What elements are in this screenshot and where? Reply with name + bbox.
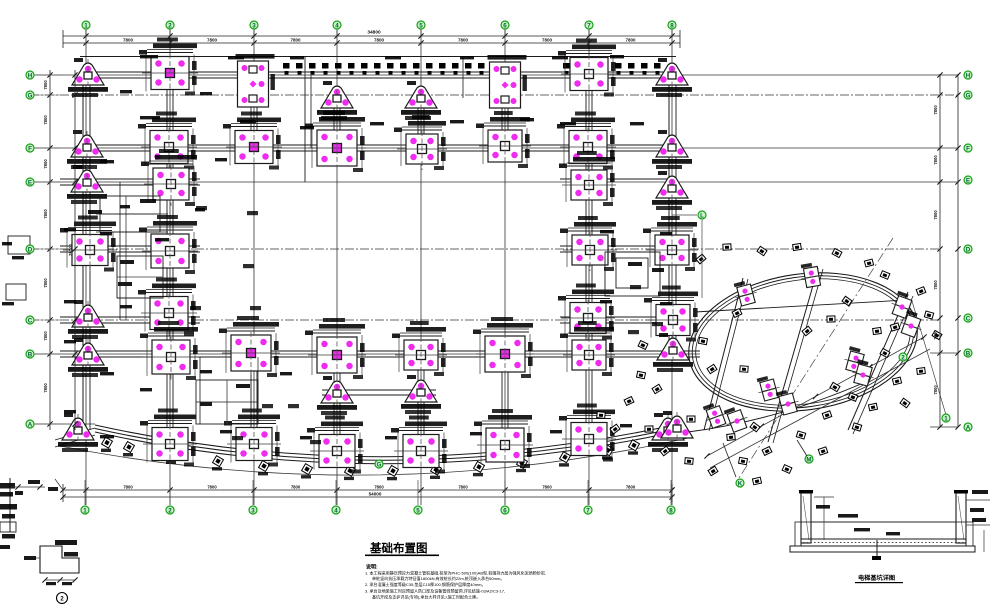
- svg-text:说明:: 说明:: [366, 564, 378, 571]
- svg-text:2: 2: [168, 507, 172, 514]
- svg-text:54000: 54000: [369, 492, 382, 497]
- svg-text:基坑开挖及支护详见(专项),承台大样详见J,施工时配合土建。: 基坑开挖及支护详见(专项),承台大样详见J,施工时配合土建。: [372, 594, 480, 600]
- svg-text:4: 4: [334, 507, 338, 514]
- svg-text:7800: 7800: [374, 38, 385, 43]
- svg-text:D: D: [28, 246, 33, 253]
- svg-text:单桩竖向抗压承载力特征值1800kN,有效桩长约22m,桩顶: 单桩竖向抗压承载力特征值1800kN,有效桩长约22m,桩顶嵌入承台50mm。: [372, 575, 504, 581]
- svg-text:7800: 7800: [290, 38, 301, 43]
- svg-text:2: 2: [168, 22, 172, 29]
- svg-text:6: 6: [503, 22, 507, 29]
- svg-text:3. 承台及地梁施工时应预留人防口部及设备管线预留洞,详见结: 3. 承台及地梁施工时应预留人防口部及设备管线预留洞,详见结施-03/A2/C3…: [365, 588, 505, 594]
- svg-text:F: F: [966, 145, 970, 152]
- svg-text:7800: 7800: [933, 280, 938, 290]
- svg-text:7800: 7800: [933, 155, 938, 165]
- svg-text:34800: 34800: [367, 30, 381, 36]
- svg-text:B: B: [28, 351, 33, 358]
- svg-text:29700: 29700: [68, 244, 73, 256]
- svg-text:7: 7: [586, 507, 590, 514]
- svg-text:7800: 7800: [43, 209, 48, 219]
- svg-text:H: H: [28, 72, 33, 79]
- svg-text:7800: 7800: [207, 484, 217, 489]
- svg-text:2. 承台混凝土强度等级C35,垫层C15厚100,钢筋保护: 2. 承台混凝土强度等级C35,垫层C15厚100,钢筋保护层厚度40mm。: [365, 581, 486, 587]
- svg-text:D: D: [966, 246, 971, 253]
- svg-text:G: G: [377, 461, 382, 468]
- svg-text:7800: 7800: [933, 385, 938, 395]
- svg-text:K: K: [738, 480, 743, 487]
- svg-text:A: A: [966, 424, 971, 431]
- svg-text:7800: 7800: [374, 484, 384, 489]
- svg-text:3: 3: [251, 507, 255, 514]
- svg-text:F: F: [28, 145, 32, 152]
- svg-text:7800: 7800: [123, 38, 134, 43]
- svg-text:7: 7: [587, 22, 591, 29]
- svg-text:1: 1: [84, 22, 88, 29]
- svg-text:7800: 7800: [625, 38, 636, 43]
- svg-text:A: A: [28, 421, 33, 428]
- svg-text:E: E: [28, 179, 32, 186]
- svg-text:7800: 7800: [43, 80, 48, 90]
- svg-text:7800: 7800: [933, 105, 938, 115]
- svg-text:E: E: [966, 177, 970, 184]
- svg-text:M: M: [806, 456, 811, 463]
- svg-text:C: C: [966, 315, 971, 322]
- svg-text:L: L: [700, 212, 704, 219]
- svg-text:4: 4: [335, 22, 339, 29]
- svg-text:7800: 7800: [43, 331, 48, 341]
- svg-text:2: 2: [901, 354, 905, 361]
- svg-text:8: 8: [670, 22, 674, 29]
- svg-text:G: G: [28, 92, 33, 99]
- svg-text:7800: 7800: [291, 484, 301, 489]
- svg-text:8: 8: [669, 507, 673, 514]
- svg-text:6: 6: [503, 507, 507, 514]
- svg-text:7800: 7800: [43, 278, 48, 288]
- svg-text:基础布置图: 基础布置图: [369, 541, 428, 555]
- svg-text:1: 1: [83, 507, 87, 514]
- svg-text:7800: 7800: [207, 38, 218, 43]
- svg-text:G: G: [966, 92, 971, 99]
- svg-text:7800: 7800: [933, 210, 938, 220]
- svg-text:7800: 7800: [123, 484, 133, 489]
- svg-text:5: 5: [416, 507, 420, 514]
- svg-text:电梯基坑详图: 电梯基坑详图: [858, 574, 895, 582]
- svg-text:7800: 7800: [43, 383, 48, 393]
- svg-text:7800: 7800: [43, 115, 48, 125]
- svg-text:1. 本工程采用静压预应力混凝土管桩基础,桩型为PHC-50: 1. 本工程采用静压预应力混凝土管桩基础,桩型为PHC-500(100)AB型,…: [365, 570, 546, 576]
- svg-text:7800: 7800: [542, 38, 553, 43]
- svg-text:C: C: [28, 317, 33, 324]
- svg-text:B: B: [966, 350, 971, 357]
- svg-text:7800: 7800: [458, 484, 468, 489]
- svg-text:7800: 7800: [626, 484, 636, 489]
- svg-text:H: H: [966, 72, 971, 79]
- svg-text:7800: 7800: [933, 330, 938, 340]
- svg-text:5: 5: [419, 22, 423, 29]
- svg-text:7800: 7800: [458, 38, 469, 43]
- svg-text:7800: 7800: [542, 484, 552, 489]
- svg-text:1: 1: [944, 415, 948, 422]
- svg-text:7800: 7800: [43, 159, 48, 169]
- svg-text:3: 3: [252, 22, 256, 29]
